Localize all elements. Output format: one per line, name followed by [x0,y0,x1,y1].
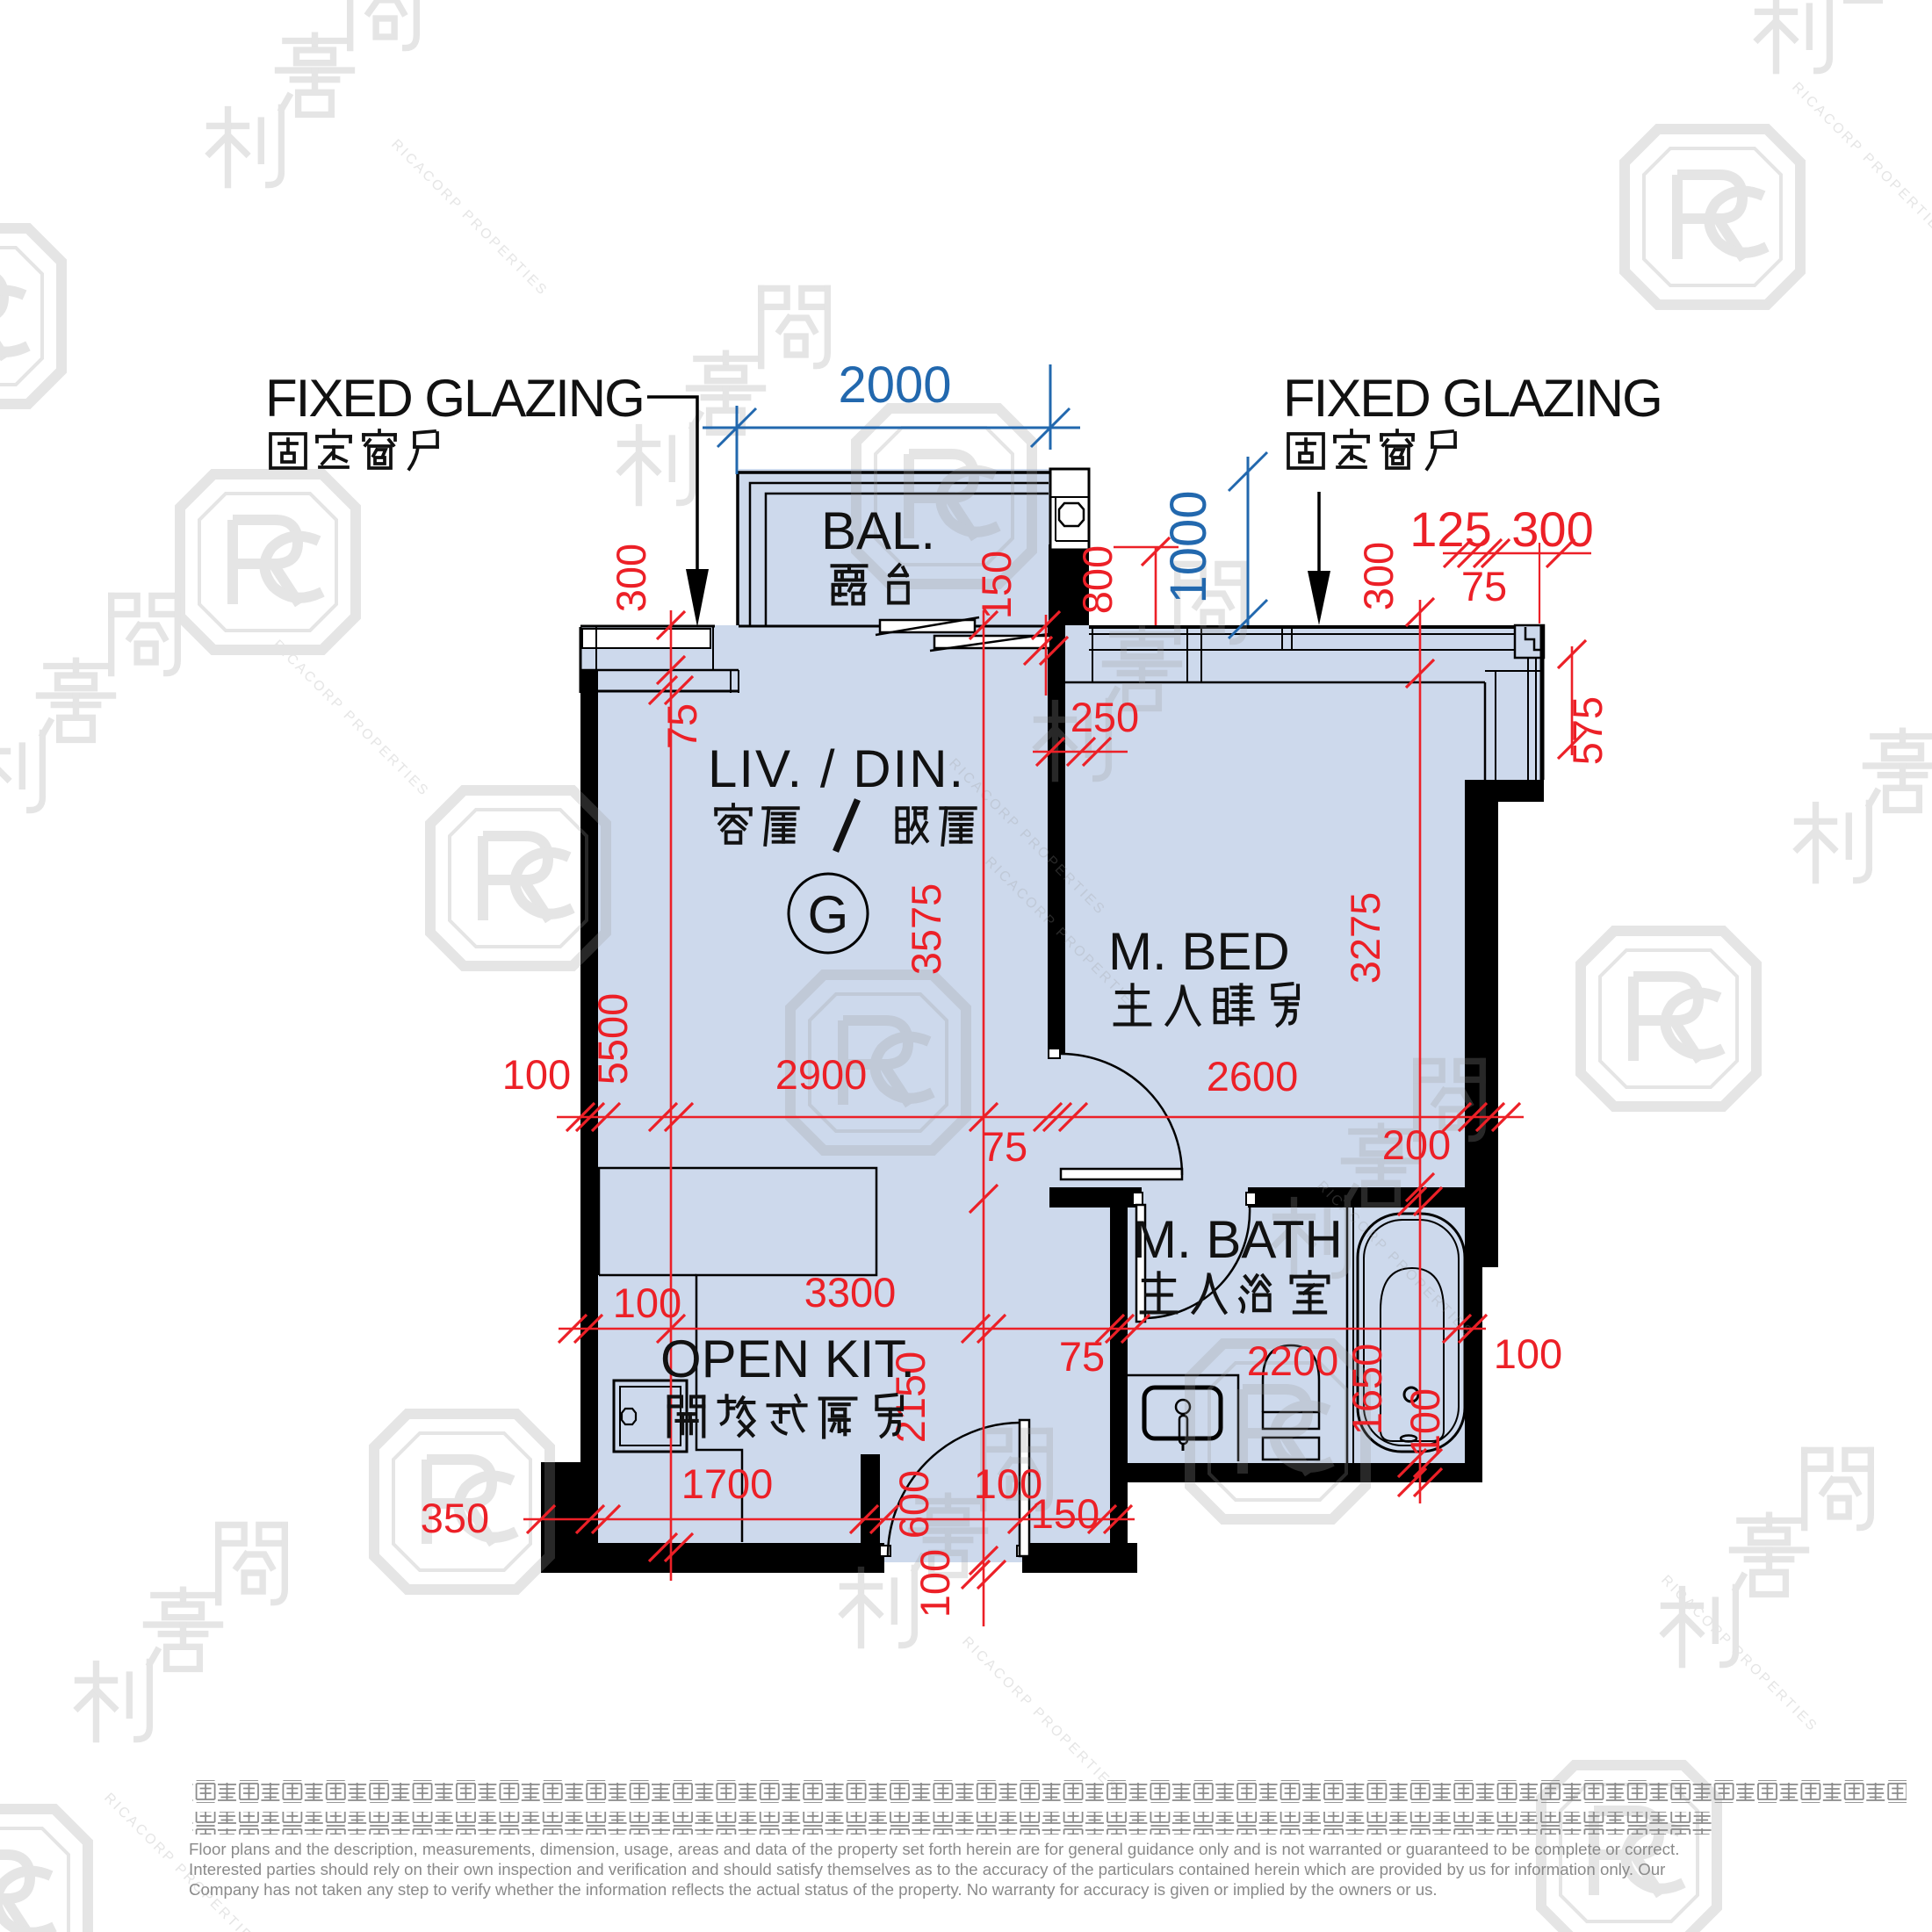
svg-text:800: 800 [1074,545,1121,614]
svg-text:75: 75 [1059,1333,1105,1380]
svg-text:350: 350 [421,1495,489,1541]
svg-text:600: 600 [890,1470,937,1539]
svg-text:300: 300 [608,544,654,612]
svg-text:2900: 2900 [775,1051,868,1098]
svg-text:75: 75 [1461,563,1507,609]
svg-text:Floor plans and the descriptio: Floor plans and the description, measure… [189,1840,1679,1858]
svg-text:3575: 3575 [903,883,949,976]
svg-text:100: 100 [1494,1330,1562,1377]
svg-text:G: G [808,885,849,944]
svg-text:100: 100 [502,1051,571,1098]
svg-text:150: 150 [1031,1490,1099,1537]
svg-text:1650: 1650 [1344,1344,1390,1436]
svg-text:100: 100 [613,1280,681,1326]
svg-text:1700: 1700 [681,1460,774,1507]
svg-text:75: 75 [659,703,705,749]
svg-text:100: 100 [912,1549,958,1618]
svg-text:2000: 2000 [838,357,951,414]
svg-text:2600: 2600 [1207,1053,1299,1099]
svg-text:Interested parties should rely: Interested parties should rely on their … [189,1860,1665,1878]
svg-text:BAL.: BAL. [821,501,935,560]
svg-text:200: 200 [1382,1121,1451,1168]
svg-text:FIXED GLAZING: FIXED GLAZING [265,369,644,428]
svg-text:OPEN KIT.: OPEN KIT. [660,1330,915,1388]
svg-text:3275: 3275 [1342,892,1388,984]
svg-text:125: 125 [1409,501,1491,557]
svg-text:150: 150 [973,551,1020,619]
svg-text:Company has not taken any step: Company has not taken any step to verify… [189,1880,1438,1899]
svg-text:575: 575 [1564,696,1611,765]
svg-text:LIV. / DIN.: LIV. / DIN. [708,739,965,798]
svg-text:M. BATH: M. BATH [1133,1210,1343,1269]
svg-text:M. BED: M. BED [1108,922,1290,981]
svg-text:100: 100 [1402,1388,1448,1457]
svg-text:2200: 2200 [1247,1337,1339,1384]
svg-text:300: 300 [1355,542,1402,610]
svg-text:FIXED GLAZING: FIXED GLAZING [1283,369,1662,428]
svg-text:5500: 5500 [589,993,636,1085]
svg-text:3300: 3300 [804,1269,897,1316]
svg-text:75: 75 [982,1123,1027,1170]
svg-text:250: 250 [1071,694,1139,740]
svg-text:300: 300 [1511,501,1593,557]
